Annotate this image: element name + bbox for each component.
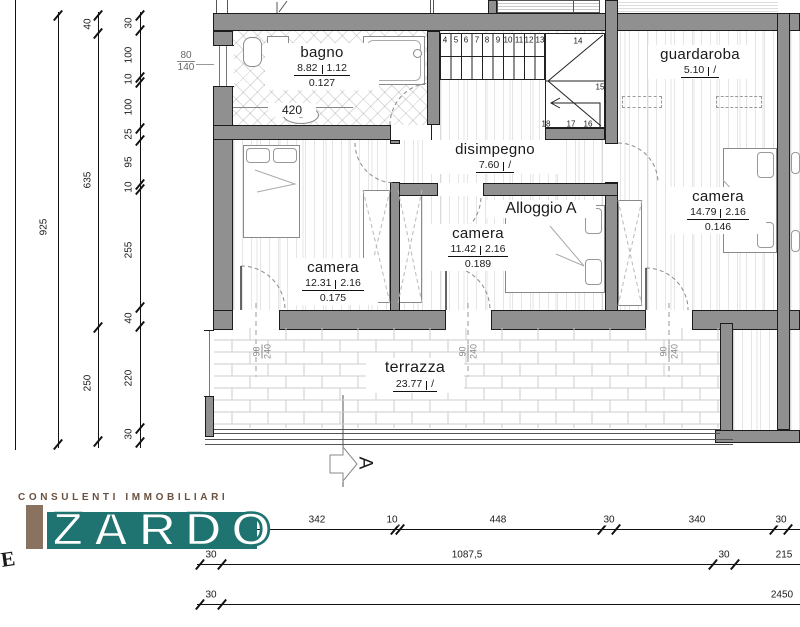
room-label-disimpegno: disimpegno 7.60/ (428, 140, 562, 174)
wall-disimpegno-south (395, 183, 618, 196)
stair-step-number: 6 (464, 36, 468, 45)
logo-tan-block (26, 505, 43, 549)
stair-step-number: 5 (454, 36, 458, 45)
floorplan-canvas: 456789101112131415161718 (0, 0, 800, 627)
dim-line-bottom-1 (197, 529, 800, 530)
bagno-door-opening (390, 125, 432, 140)
parapet-line (214, 429, 720, 430)
upper-floor-cut-line (430, 0, 431, 13)
stair-landing (545, 33, 605, 128)
stair-step-number: 14 (574, 37, 583, 46)
pillow (585, 259, 602, 285)
room-label-bagno: bagno 8.821.12 0.127 (265, 43, 379, 90)
closet-dashed (716, 96, 762, 108)
dim-label: 30 (774, 515, 787, 526)
stair-step-number: 9 (496, 36, 500, 45)
door-size-label: 90240 (252, 334, 273, 370)
dim-line-vertical (15, 0, 16, 450)
window-line (226, 46, 227, 86)
room-label-camera-center: camera 11.422.16 0.189 (430, 224, 526, 271)
pillow (757, 152, 774, 178)
wall-bedrooms-south (213, 310, 800, 330)
camera-left-door-opening (390, 143, 400, 183)
wall-lower-right-divider (720, 323, 733, 440)
door-size-label: 90240 (659, 334, 680, 370)
parapet-line (214, 433, 720, 434)
adjacent-pillow (791, 230, 800, 252)
dim-label: 215 (775, 550, 794, 561)
window-size-label: 80 140 (168, 50, 204, 73)
pillow (273, 148, 297, 163)
dim-line-bottom-2 (197, 564, 800, 565)
camera-center-door-opening (437, 183, 484, 196)
railing-line (209, 331, 210, 396)
stray-letter: E (0, 546, 17, 573)
dim-label: 30 (717, 550, 730, 561)
stair-step-number: 8 (485, 36, 489, 45)
upper-floor-cut-line (433, 0, 434, 13)
adjacent-pillow (791, 152, 800, 174)
dim-label: 635 (83, 171, 94, 190)
dim-line-vertical (98, 12, 99, 448)
door-size-label: 90240 (458, 334, 479, 370)
dim-label: 30 (124, 427, 135, 440)
dim-label: 95 (124, 155, 135, 168)
parapet-line (205, 444, 733, 445)
dim-line-bottom-3 (197, 604, 800, 605)
dim-label: 1087,5 (451, 550, 484, 561)
upper-deck-cut (618, 0, 778, 13)
stair-step-number: 11 (515, 36, 523, 45)
upper-floor-cut-line (216, 0, 217, 13)
cut-mark (277, 1, 287, 13)
dim-label: 255 (124, 241, 135, 260)
upper-floor-cut-line (227, 0, 228, 13)
dim-label: 220 (124, 369, 135, 388)
wall-top (213, 13, 800, 31)
dim-line-vertical (58, 12, 59, 448)
logo-tagline: CONSULENTI IMMOBILIARI (18, 492, 228, 503)
dim-label: 10 (124, 72, 135, 85)
dim-label: 10 (385, 515, 398, 526)
stair-step-number: 12 (525, 36, 534, 45)
dim-label: 2450 (770, 590, 794, 601)
dim-label: 925 (39, 218, 50, 237)
dim-label: 100 (124, 98, 135, 117)
bagno-width-dim: 420 (268, 103, 316, 117)
room-label-camera-left: camera 12.312.16 0.175 (288, 258, 378, 305)
stair-step-number: 7 (475, 36, 479, 45)
wall-east-outer (777, 13, 790, 430)
dim-label: 30 (204, 590, 217, 601)
room-label-terrazza: terrazza 23.77/ (366, 358, 464, 393)
wall-lower-right-south (715, 430, 800, 443)
stair-step-number: 4 (443, 36, 447, 45)
wall-stair-west (427, 31, 440, 125)
bagno-window (213, 45, 234, 87)
section-marker-label: A (353, 457, 375, 470)
stair-step-number: 15 (596, 83, 605, 92)
parapet-line (205, 439, 733, 440)
window-leader-line (196, 64, 214, 65)
dim-label: 40 (83, 17, 94, 30)
room-label-guardaroba: guardaroba 5.10/ (648, 45, 752, 79)
terrace-door-opening (445, 310, 492, 330)
dim-label: 25 (124, 127, 135, 140)
pillow (246, 148, 270, 163)
unit-label: Alloggio A (486, 200, 596, 218)
terrace-door-opening (232, 310, 280, 330)
room-label-camera-right: camera 14.792.16 0.146 (670, 187, 766, 234)
dim-label: 448 (489, 515, 508, 526)
shower-drain (413, 49, 422, 58)
dim-label: 30 (124, 16, 135, 29)
window-line (219, 46, 220, 86)
upper-deck-cut (497, 0, 600, 13)
wall-landing-south (545, 128, 605, 140)
dim-label: 100 (124, 46, 135, 65)
terrace-door-opening (645, 310, 693, 330)
wardrobe (618, 200, 642, 306)
stair-step-number: 13 (536, 36, 545, 45)
stair-step-number: 10 (504, 36, 513, 45)
upper-deck-divider (573, 0, 574, 13)
logo-wordmark: ZARDO (52, 507, 280, 551)
bidet (243, 37, 262, 67)
dim-label: 340 (688, 515, 707, 526)
camera-right-door-opening (605, 143, 618, 183)
stair-mid-line (440, 56, 545, 57)
closet-dashed (622, 96, 662, 108)
dim-label: 10 (124, 180, 135, 193)
wardrobe (398, 190, 422, 303)
dim-label: 30 (602, 515, 615, 526)
upper-wall-stub (488, 0, 497, 14)
dim-label: 250 (83, 374, 94, 393)
dim-label: 342 (308, 515, 327, 526)
dim-label: 40 (124, 311, 135, 324)
